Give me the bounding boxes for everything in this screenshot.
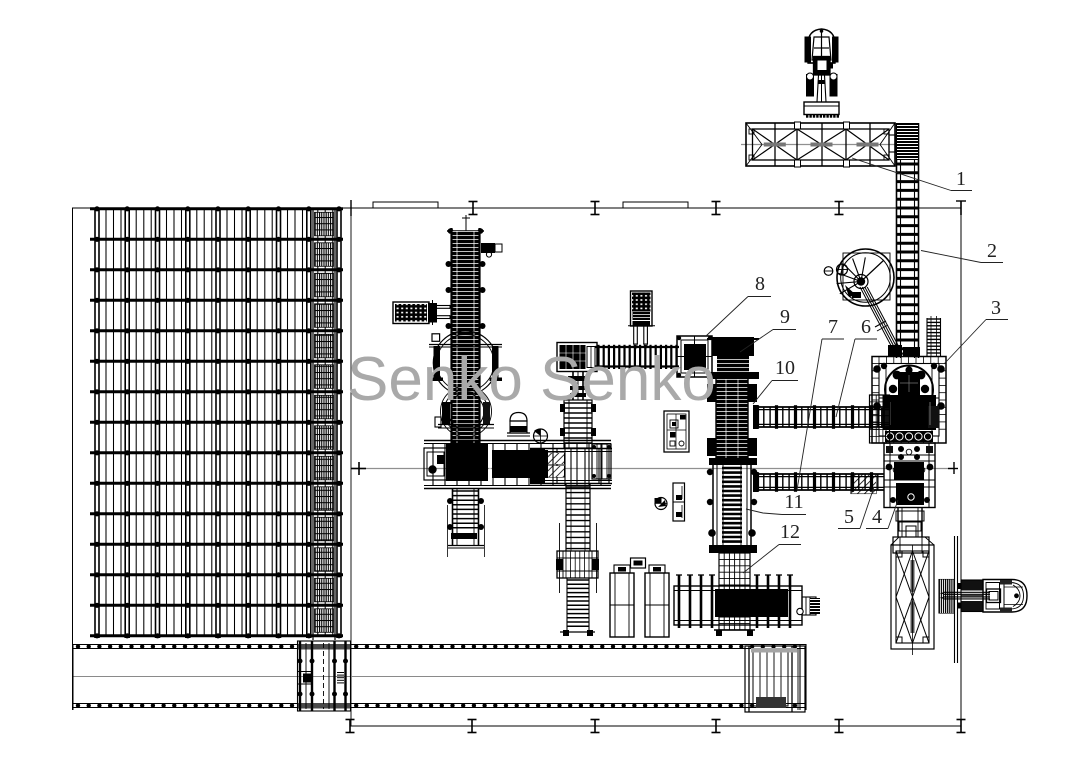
- svg-text:1: 1: [956, 168, 966, 190]
- svg-text:7: 7: [828, 316, 838, 338]
- svg-text:Senko Senko: Senko Senko: [347, 345, 716, 414]
- svg-text:4: 4: [872, 506, 882, 528]
- svg-text:8: 8: [755, 273, 765, 295]
- svg-text:6: 6: [861, 316, 871, 338]
- svg-text:3: 3: [991, 297, 1001, 319]
- svg-text:12: 12: [780, 521, 800, 543]
- svg-text:10: 10: [775, 357, 795, 379]
- svg-text:9: 9: [780, 306, 790, 328]
- svg-text:11: 11: [784, 491, 803, 513]
- svg-text:2: 2: [987, 240, 997, 262]
- svg-text:5: 5: [844, 506, 854, 528]
